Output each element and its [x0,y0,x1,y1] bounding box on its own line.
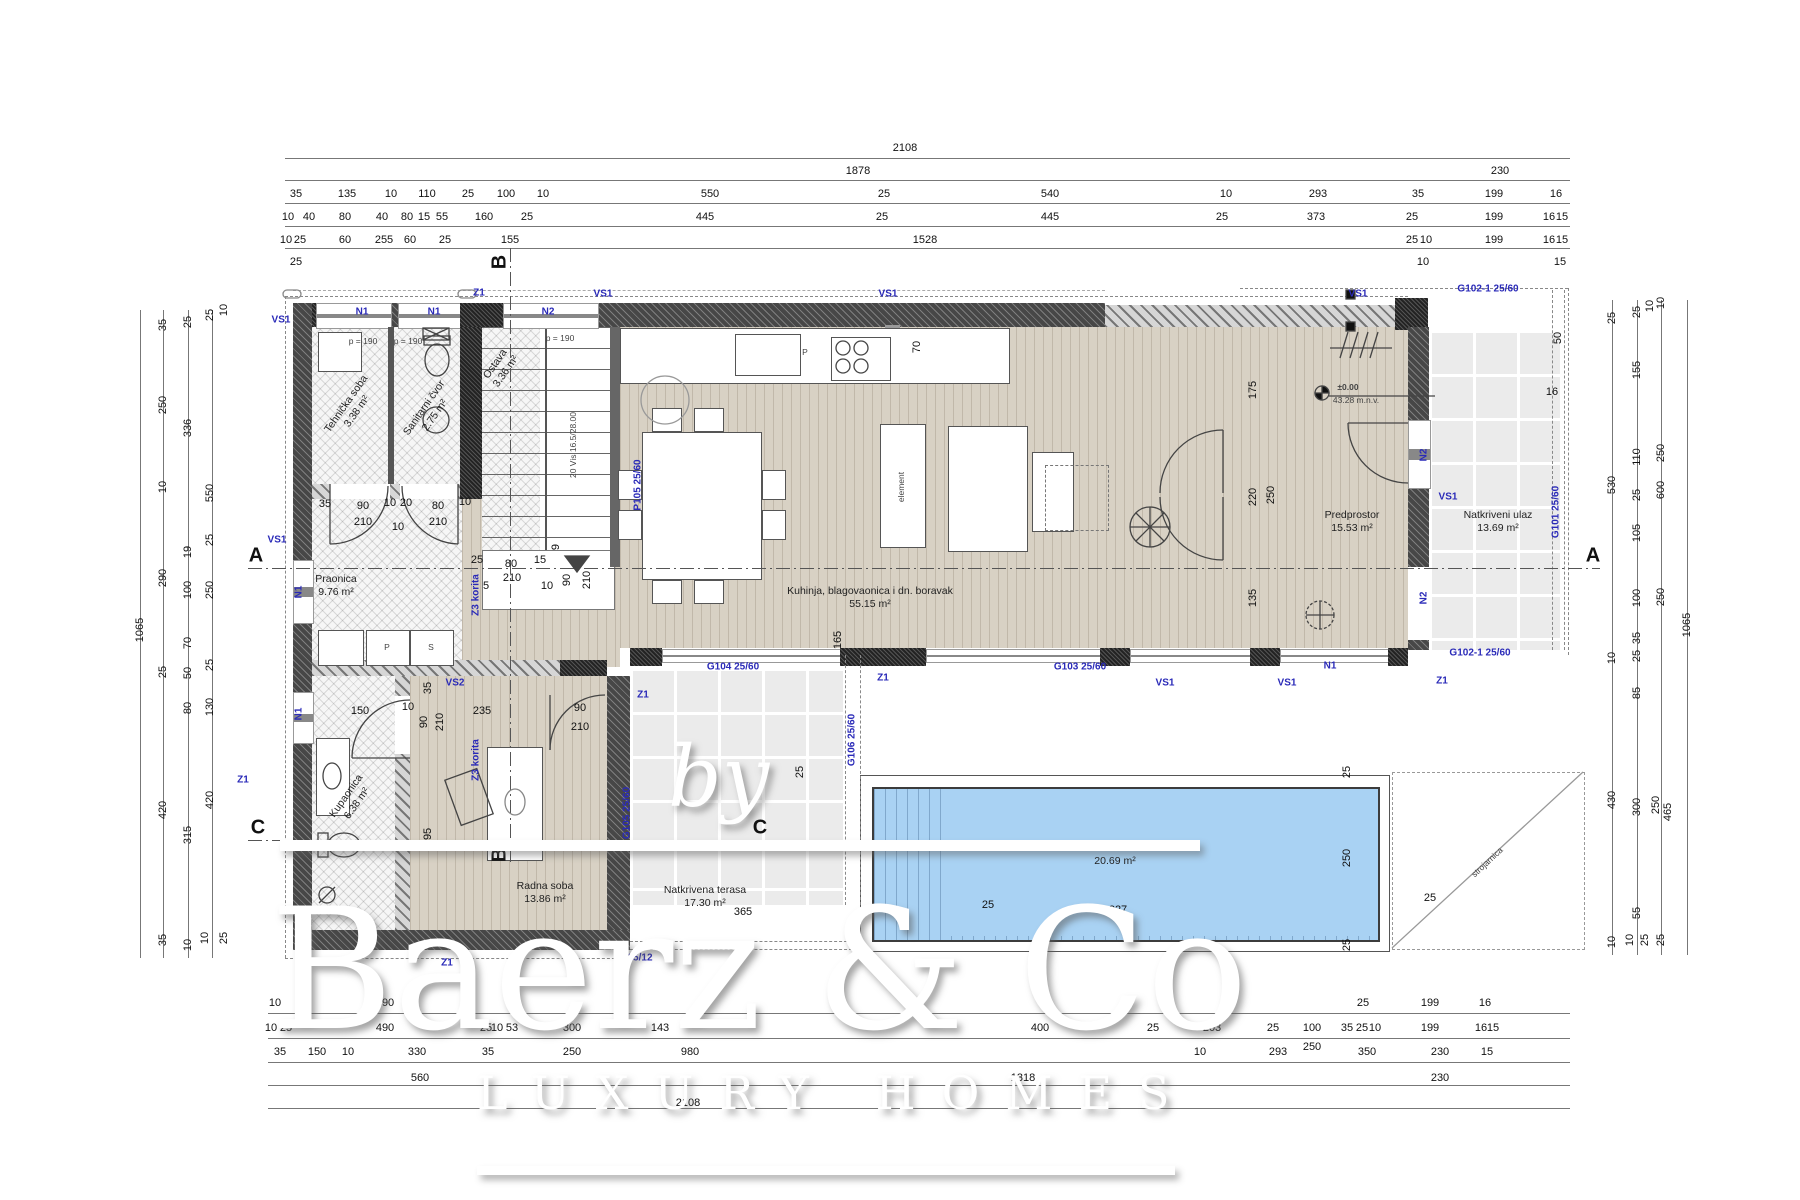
dimension-label: 530 [1606,476,1618,494]
dimension-label: 336 [182,419,194,437]
marker-label: N2 [542,307,555,318]
dimension-label: 550 [701,188,719,200]
dimension-label: 55 [1631,907,1643,919]
dimension-label: 465 [1662,803,1674,821]
dimension-label: 250 [204,581,216,599]
dimension-label: 210 [503,572,521,584]
dimension-label: 19 [182,546,194,558]
dimension-label: 230 [1431,1072,1449,1084]
elevation-level: ±0.00 [1337,382,1358,392]
marker-label: Z3 korita [471,574,482,616]
dimension-label: 80 [505,558,517,570]
marker-label: N1 [428,307,441,318]
dimension-label: 199 [1421,997,1439,1009]
annotation-label: P [384,642,390,652]
dimension-label: 16 [1479,997,1491,1009]
dimension-label: 1528 [913,234,937,246]
room-label: Tehnička soba3.38 m² [322,373,382,443]
dimension-label: 25 [182,316,194,328]
dimension-label: 35 [482,1046,494,1058]
dimension-label: 250 [157,396,169,414]
section-letter: A [249,545,263,568]
marker-label: G102-1 25/60 [1457,284,1518,295]
dimension-label: 155 [501,234,519,246]
dimension-label: 25 [1341,939,1353,951]
dimension-label: 130 [204,698,216,716]
dimension-label: 1065 [1681,613,1693,637]
dimension-label: 90 [418,716,430,728]
dimension-label: 16 [1550,188,1562,200]
dimension-label: 25 [1631,306,1643,318]
dimension-label: 35 [290,188,302,200]
dimension-label: 25 [204,309,216,321]
dimension-label: 85 [1631,687,1643,699]
dimension-label: 150 [351,705,369,717]
dimension-label: 35 [1412,188,1424,200]
dimension-label: 15 [1481,1046,1493,1058]
annotation-label: P [802,347,808,357]
dimension-label: 10 [541,580,553,592]
marker-label: Z1 [1436,676,1448,687]
section-letter: B [489,255,512,269]
dimension-label: 445 [1041,211,1059,223]
room-area: 13.86 m² [517,893,574,906]
dimension-label: 135 [338,188,356,200]
dimension-label: 10 [402,701,414,713]
dimension-label: 25 [521,211,533,223]
dimension-label: 40 [376,211,388,223]
dimension-label: 155 [1631,361,1643,379]
dimension-label: 40 [303,211,315,223]
dimension-label: 15 [1556,234,1568,246]
dimension-label: 25 [1147,1022,1159,1034]
dimension-label: 250 [563,1046,581,1058]
dimension-label: 10 [1624,934,1636,946]
dimension-label: 70 [911,341,923,353]
dimension-label: 25 [1639,934,1651,946]
room-label: Natkrivena terasa17.30 m² [664,884,746,910]
dimension-label: 560 [411,1072,429,1084]
dimension-label: 25 [1406,234,1418,246]
dimension-label: 100 [1303,1022,1321,1034]
dimension-label: 25 [1357,997,1369,1009]
dimension-label: 80 [432,500,444,512]
room-area: 20.69 m² [1094,855,1135,868]
room-area: 9.76 m² [315,586,356,599]
dimension-label: 150 [308,1046,326,1058]
dimension-label: 25 [1341,766,1353,778]
dimension-label: 70 [182,637,194,649]
dimension-label: 1878 [846,165,870,177]
dimension-label: 290 [157,569,169,587]
dimension-label: 25 [1424,892,1436,904]
dimension-label: 25 [1655,934,1667,946]
room-name: Praonica [315,573,356,586]
dimension-label: 16 [1546,386,1558,398]
dimension-label: 80 [339,211,351,223]
dimension-label: 220 [1247,488,1259,506]
annotation-label: S [428,642,434,652]
room-area: 15.53 m² [1325,522,1380,535]
dimension-label: 373 [1307,211,1325,223]
dimension-label: 25 [1216,211,1228,223]
annotation-label: 20 Vis 16.5/28.00 [568,412,578,478]
dimension-label: 20 [400,497,412,509]
dimension-label: 25 [878,188,890,200]
dimension-label: 10 [1417,256,1429,268]
dimension-label: 300 [1631,798,1643,816]
dimension-label: 2108 [893,142,917,154]
dimension-label: 50 [1552,332,1564,344]
section-letter: C [251,817,265,840]
dimension-label: 10 [1655,297,1667,309]
room-area: 13.69 m² [1464,522,1533,535]
marker-label: G105 25/60 [622,787,633,839]
marker-label: Z3 korita [471,739,482,781]
elevation-altitude: 43.28 m.n.v. [1333,395,1379,405]
dimension-label: 100 [1631,589,1643,607]
room-label: Sanitarni čvor2.75 m² [401,378,459,446]
marker-label: G101 25/60 [1551,486,1562,538]
dimension-label: 255 [375,234,393,246]
dimension-label: 25 [794,766,806,778]
dimension-label: 35 [157,934,169,946]
dimension-label: 250 [1341,849,1353,867]
dimension-label: 5 [483,580,489,592]
marker-label: VS1 [268,535,287,546]
dimension-label: 315 [182,826,194,844]
dimension-label: 250 [1655,588,1667,606]
room-label: Praonica9.76 m² [315,573,356,599]
marker-label: N2 [1419,592,1430,605]
dimension-label: 10 [385,188,397,200]
floor-plan-page: ±0.00 43.28 m.n.v. 210818782303513510110… [0,0,1800,1200]
marker-label: Z1 [877,673,889,684]
room-area: 55.15 m² [787,598,953,611]
dimension-label: 16 [1543,234,1555,246]
dimension-label: 445 [696,211,714,223]
marker-label: N1 [294,708,305,721]
marker-label: 25/12 [627,953,652,964]
dimension-label: 490 [376,997,394,1009]
dimension-label: 90 [561,574,573,586]
dimension-label: 199 [1485,188,1503,200]
dimension-label: 400 [1031,1022,1049,1034]
dimension-label: 25 [294,234,306,246]
dimension-label: 1318 [1011,1072,1035,1084]
dimension-label: 25 [1406,211,1418,223]
room-name: Predprostor [1325,509,1380,522]
dimension-label: 100 [182,581,194,599]
section-letter: A [1586,545,1600,568]
marker-label: G102-1 25/60 [1449,648,1510,659]
dimension-label: 53 [506,1022,518,1034]
dimension-label: 210 [434,713,446,731]
dimension-label: 10 [199,932,211,944]
marker-label: VS1 [1156,678,1175,689]
dimension-label: 210 [571,721,589,733]
dimension-label: 10 [1220,188,1232,200]
dimension-label: 35 [319,498,331,510]
marker-label: VS1 [1439,492,1458,503]
dimension-label: 10 [459,496,471,508]
dimension-label: 90 [574,702,586,714]
annotation-label: element [896,472,906,502]
dimension-label: 10 [218,304,230,316]
dimension-label: 250 [1265,486,1277,504]
dimension-label: 35 [274,1046,286,1058]
dimension-label: 100 [497,188,515,200]
dimension-label: 230 [1431,1046,1449,1058]
dimension-label: 25 [982,899,994,911]
dimension-label: 350 [1358,1046,1376,1058]
dimension-label: 35 [1631,632,1643,644]
dimension-label: 600 [1655,481,1667,499]
dimension-label: 430 [1606,791,1618,809]
dimension-label: 1065 [134,618,146,642]
room-name: Natkrivena terasa [664,884,746,897]
dimension-label: 25 [876,211,888,223]
dimension-label: 35 [1341,1022,1353,1034]
dimension-label: 9 [550,544,562,550]
marker-label: G106 25/60 [847,714,858,766]
dimension-label: 210 [354,516,372,528]
dimension-label: 15 [1554,256,1566,268]
dimension-label: 420 [157,801,169,819]
room-label: Kuhinja, blagovaonica i dn. boravak55.15… [787,585,953,611]
dimension-label: 135 [1247,589,1259,607]
dimension-label: 15 [1487,1022,1499,1034]
dimension-label: 80 [182,702,194,714]
dimension-label: 105 [1631,524,1643,542]
dimension-label: 293 [1309,188,1327,200]
marker-label: G103 25/60 [1054,662,1106,673]
dimension-label: 10 [282,211,294,223]
dimension-label: 490 [376,1022,394,1034]
room-name: Radna soba [517,880,574,893]
dimension-label: 210 [581,571,593,589]
dimension-label: 25 [218,932,230,944]
dimension-label: 10 [265,1022,277,1034]
dimension-label: 235 [473,705,491,717]
dimension-label: 10 [1369,1022,1381,1034]
marker-label: VS1 [879,289,898,300]
marker-label: VS1 [272,315,291,326]
dimension-label: 25 [280,1022,292,1034]
dimension-label: 165 [832,631,844,649]
room-label: Predprostor15.53 m² [1325,509,1380,535]
labels-layer: 2108187823035135101102510010550255401029… [0,0,1800,1200]
dimension-label: 50 [182,667,194,679]
dimension-label: 10 [280,234,292,246]
dimension-label: 25 [471,554,483,566]
dimension-label: 60 [339,234,351,246]
room-area: 17.30 m² [664,897,746,910]
dimension-label: 250 [1303,1041,1321,1053]
annotation-label: strojarnica [1469,845,1505,879]
dimension-label: 10 [1606,936,1618,948]
dimension-label: 2108 [676,1097,700,1109]
section-letter: C [753,817,767,840]
dimension-label: 330 [408,1046,426,1058]
marker-label: N1 [356,307,369,318]
dimension-label: 10 [537,188,549,200]
dimension-label: 10 [269,997,281,1009]
marker-label: Z1 [237,775,249,786]
marker-label: N1 [1324,661,1337,672]
watermark-rule-bottom [477,1166,1175,1175]
dimension-label: 827 [1109,904,1127,916]
dimension-label: 10 [384,497,396,509]
dimension-label: 25 [1267,1022,1279,1034]
marker-label: VS2 [446,678,465,689]
dimension-label: 25 [462,188,474,200]
marker-label: Z1 [473,288,485,299]
dimension-label: 25 [1606,312,1618,324]
dimension-label: 90 [357,500,369,512]
dimension-label: 25 [204,659,216,671]
dimension-label: 25 [204,534,216,546]
dimension-label: 199 [1485,211,1503,223]
marker-label: Z1 [441,958,453,969]
dimension-label: 35 [422,682,434,694]
dimension-label: 175 [1247,381,1259,399]
dimension-label: 10 [1194,1046,1206,1058]
dimension-label: 10 [182,939,194,951]
dimension-label: 10 [1606,652,1618,664]
dimension-label: 25 [439,234,451,246]
dimension-label: 25 [290,256,302,268]
annotation-label: p = 190 [394,336,423,346]
dimension-label: 15 [1556,211,1568,223]
dimension-label: 10 [342,1046,354,1058]
marker-label: N1 [294,586,305,599]
dimension-label: 420 [204,791,216,809]
dimension-label: 55 [436,211,448,223]
dimension-label: 25 [1631,489,1643,501]
dimension-label: 16 [1543,211,1555,223]
room-label: Radna soba13.86 m² [517,880,574,906]
dimension-label: 143 [651,1022,669,1034]
dimension-label: 110 [1631,448,1643,466]
watermark-rule-top [280,840,1200,851]
dimension-label: 203 [1203,1022,1221,1034]
dimension-label: 300 [563,1022,581,1034]
dimension-label: 250 [1650,796,1662,814]
room-label: Ostava3.36 m² [480,346,522,390]
marker-label: VS1 [1278,678,1297,689]
dimension-label: 540 [1041,188,1059,200]
dimension-label: 10 [157,481,169,493]
room-name: Natkriveni ulaz [1464,509,1533,522]
dimension-label: 35 [157,319,169,331]
dimension-label: 60 [404,234,416,246]
dimension-label: 16 [1475,1022,1487,1034]
marker-label: Z1 [637,690,649,701]
dimension-label: 210 [429,516,447,528]
dimension-label: 25 [1356,1022,1368,1034]
dimension-label: 25 [157,666,169,678]
annotation-label: p = 190 [546,333,575,343]
dimension-label: 293 [1269,1046,1287,1058]
marker-label: P105 25/60 [633,459,644,510]
marker-label: VS1 [594,289,613,300]
dimension-label: 15 [418,211,430,223]
room-name: Kuhinja, blagovaonica i dn. boravak [787,585,953,598]
marker-label: N2 [1419,449,1430,462]
dimension-label: 230 [1491,165,1509,177]
dimension-label: 250 [1655,444,1667,462]
dimension-label: 980 [681,1046,699,1058]
dimension-label: 160 [475,211,493,223]
marker-label: VS1 [1349,289,1368,300]
annotation-label: p = 190 [349,336,378,346]
marker-label: G104 25/60 [707,662,759,673]
dimension-label: 10 [1420,234,1432,246]
dimension-label: 80 [401,211,413,223]
room-label: Natkriveni ulaz13.69 m² [1464,509,1533,535]
dimension-label: 199 [1485,234,1503,246]
dimension-label: 10 [392,521,404,533]
dimension-label: 550 [204,484,216,502]
dimension-label: 15 [534,554,546,566]
dimension-label: 25 [1631,650,1643,662]
dimension-label: 10 [491,1022,503,1034]
dimension-label: 110 [418,188,436,200]
room-label: Kupaonica6.38 m² [327,772,377,828]
dimension-label: 199 [1421,1022,1439,1034]
